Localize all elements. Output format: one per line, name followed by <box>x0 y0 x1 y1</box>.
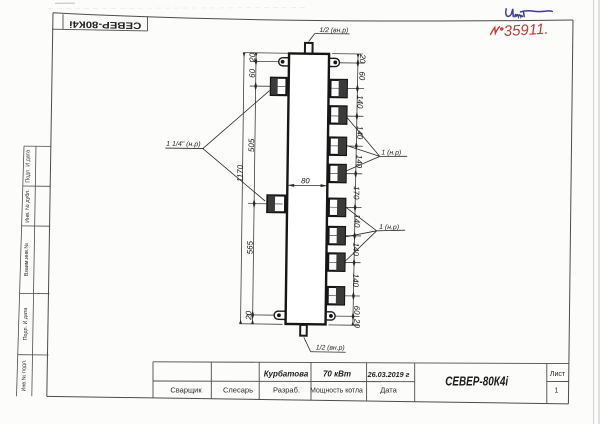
svg-text:1 (н.р): 1 (н.р) <box>381 149 401 156</box>
svg-text:565: 565 <box>245 240 254 254</box>
svg-text:1 (н.р): 1 (н.р) <box>379 224 399 231</box>
svg-text:35911.: 35911. <box>503 21 549 40</box>
svg-text:70 кВт: 70 кВт <box>323 370 351 379</box>
svg-text:26.03.2019 г: 26.03.2019 г <box>367 370 410 379</box>
svg-text:1: 1 <box>555 387 559 394</box>
svg-text:Разраб.: Разраб. <box>273 386 300 395</box>
svg-text:Инв. № дубл.: Инв. № дубл. <box>25 189 31 222</box>
svg-text:Взаим.инв.№: Взаим.инв.№ <box>24 243 30 277</box>
svg-text:Подп. И дата: Подп. И дата <box>26 150 32 183</box>
svg-text:1 1/4" (н.р): 1 1/4" (н.р) <box>166 141 200 148</box>
svg-text:Курбатова: Курбатова <box>264 370 309 379</box>
svg-text:СЕВЕР-80К4i: СЕВЕР-80К4i <box>445 373 508 388</box>
svg-text:Сварщик: Сварщик <box>170 386 202 395</box>
svg-text:80: 80 <box>301 176 310 185</box>
svg-text:1170: 1170 <box>236 164 245 182</box>
svg-text:60: 60 <box>352 306 361 316</box>
svg-text:1/2 (вн.р): 1/2 (вн.р) <box>319 27 348 34</box>
svg-text:20: 20 <box>358 53 367 64</box>
svg-text:505: 505 <box>247 138 256 152</box>
svg-text:Дата: Дата <box>380 386 397 395</box>
svg-text:Подп. И дата: Подп. И дата <box>23 308 29 341</box>
svg-text:140: 140 <box>351 274 360 288</box>
svg-text:20: 20 <box>244 310 253 321</box>
svg-text:Инв.№ подл.: Инв.№ подл. <box>22 359 28 391</box>
svg-text:Слесарь: Слесарь <box>223 386 253 395</box>
svg-text:60: 60 <box>248 68 257 78</box>
svg-text:1/2 (вн.р): 1/2 (вн.р) <box>316 345 345 352</box>
svg-text:Мощность котла: Мощность котла <box>310 388 363 395</box>
svg-text:Лист: Лист <box>550 371 566 378</box>
svg-text:140: 140 <box>355 95 364 109</box>
svg-text:СЕВЕР-80К4i: СЕВЕР-80К4i <box>69 19 141 32</box>
svg-text:20: 20 <box>352 318 361 329</box>
svg-text:170: 170 <box>352 186 361 200</box>
svg-text:60: 60 <box>357 71 366 81</box>
svg-text:20: 20 <box>248 52 257 63</box>
